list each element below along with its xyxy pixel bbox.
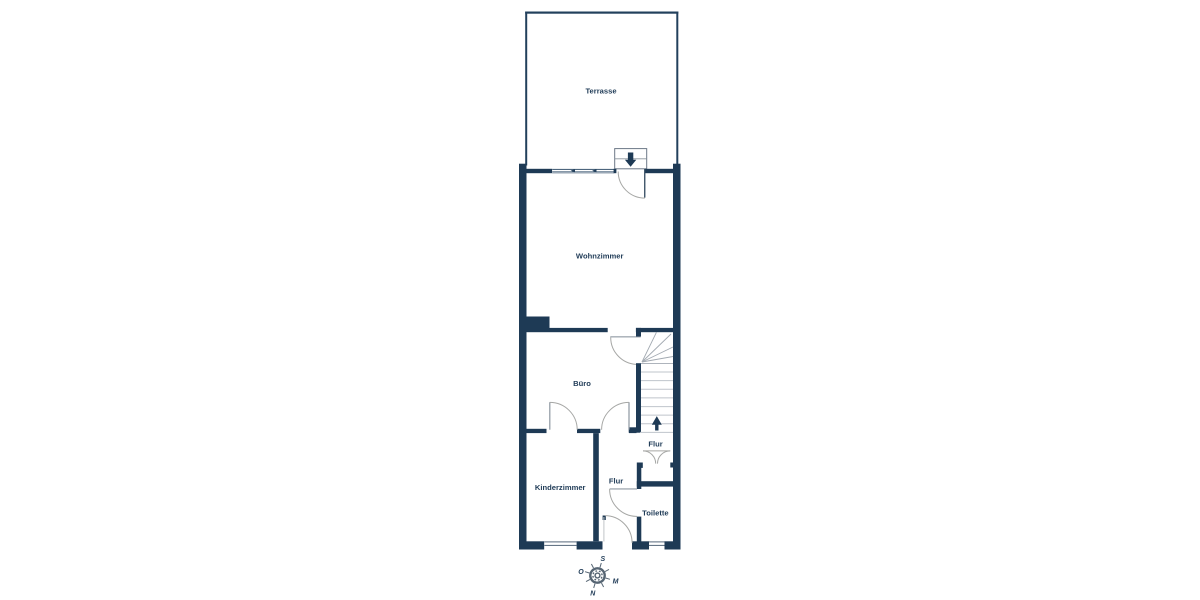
svg-text:Flur: Flur bbox=[648, 440, 662, 449]
svg-text:M: M bbox=[613, 579, 619, 586]
svg-text:Toilette: Toilette bbox=[642, 509, 668, 518]
svg-text:Terrasse: Terrasse bbox=[585, 86, 616, 95]
svg-text:Flur: Flur bbox=[609, 477, 623, 486]
svg-text:O: O bbox=[578, 569, 584, 576]
svg-text:Büro: Büro bbox=[573, 379, 591, 388]
svg-text:S: S bbox=[600, 556, 605, 563]
svg-text:Kinderzimmer: Kinderzimmer bbox=[535, 483, 586, 492]
svg-text:Wohnzimmer: Wohnzimmer bbox=[576, 252, 624, 261]
